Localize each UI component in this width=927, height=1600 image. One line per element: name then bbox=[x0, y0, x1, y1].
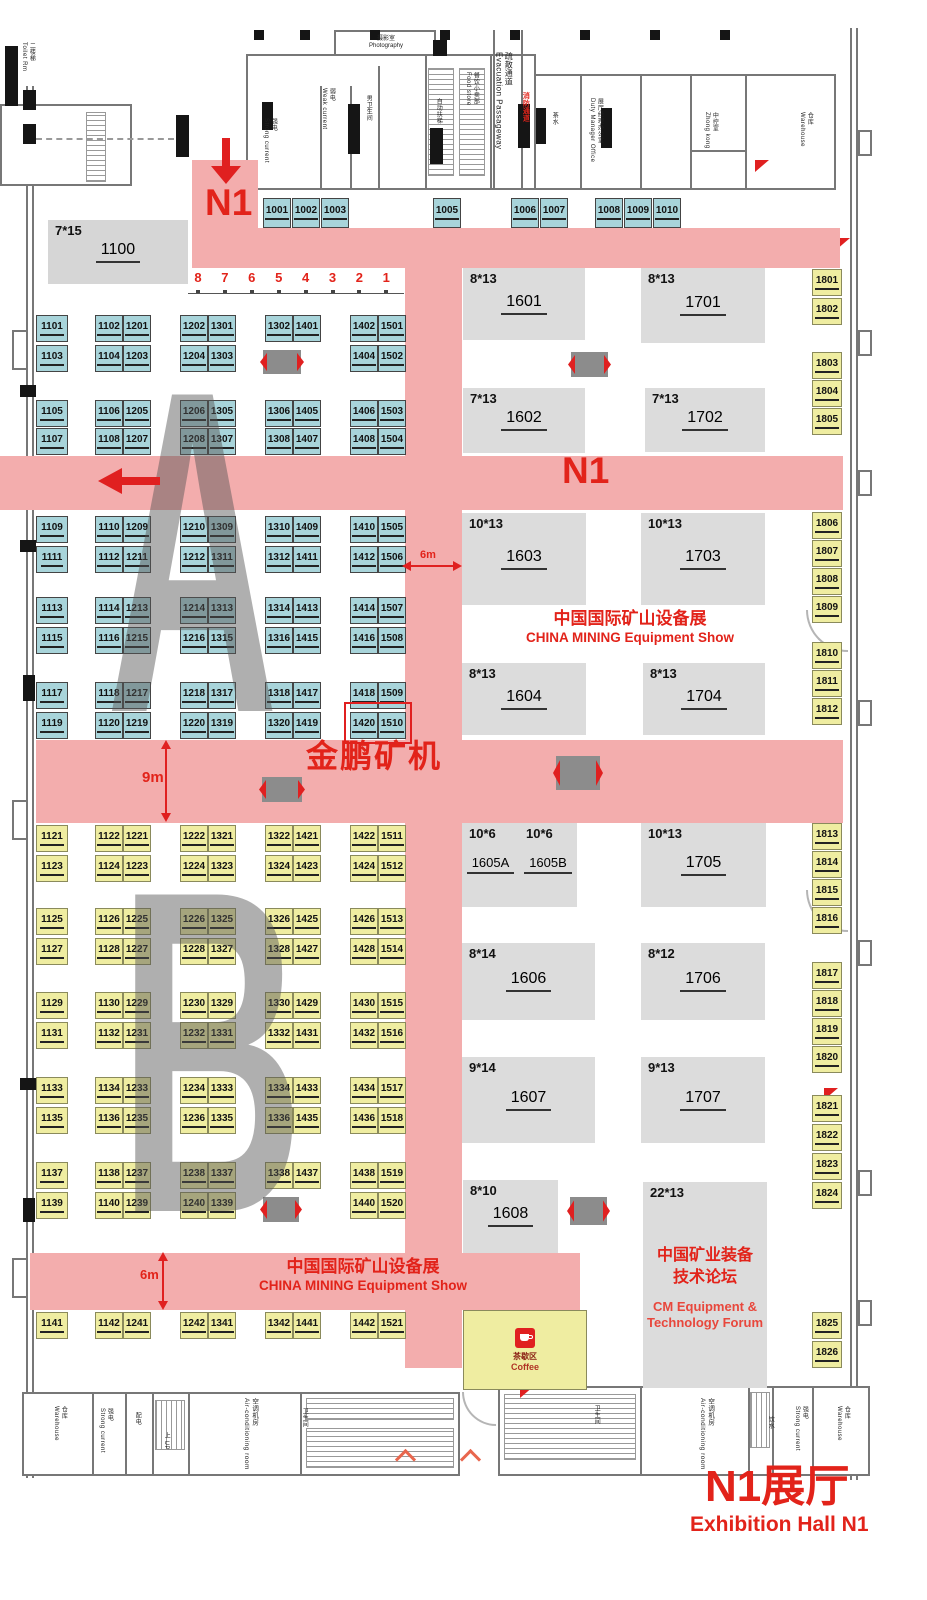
booth-1109[interactable]: 1109 bbox=[36, 516, 68, 543]
booth-number: 1426 bbox=[352, 915, 376, 929]
booth-1205[interactable]: 1205 bbox=[123, 400, 151, 427]
booth-number: 1314 bbox=[267, 604, 291, 618]
booth-number: 1520 bbox=[380, 1199, 404, 1213]
booth-1110[interactable]: 1110 bbox=[95, 516, 123, 543]
booth-number: 1511 bbox=[380, 832, 404, 846]
booth-1137[interactable]: 1137 bbox=[36, 1162, 68, 1189]
booth-1313[interactable]: 1313 bbox=[208, 597, 236, 624]
booth-1235[interactable]: 1235 bbox=[123, 1107, 151, 1134]
booth-number: 1517 bbox=[380, 1084, 404, 1098]
booth-1821[interactable]: 1821 bbox=[812, 1095, 842, 1122]
booth-1606[interactable]: 8*141606 bbox=[462, 943, 595, 1020]
booth-number: 1322 bbox=[267, 832, 291, 846]
booth-1111[interactable]: 1111 bbox=[36, 546, 68, 573]
booth-number: 1431 bbox=[295, 1029, 319, 1043]
booth-1816[interactable]: 1816 bbox=[812, 907, 842, 934]
dim-6m-line bbox=[410, 565, 454, 567]
booth-1123[interactable]: 1123 bbox=[36, 855, 68, 882]
booth-1217[interactable]: 1217 bbox=[123, 682, 151, 709]
booth-1519[interactable]: 1519 bbox=[378, 1162, 406, 1189]
booth-1513[interactable]: 1513 bbox=[378, 908, 406, 935]
booth-1818[interactable]: 1818 bbox=[812, 990, 842, 1017]
booth-1817[interactable]: 1817 bbox=[812, 962, 842, 989]
booth-1204[interactable]: 1204 bbox=[180, 345, 208, 372]
booth-1234[interactable]: 1234 bbox=[180, 1077, 208, 1104]
pillar bbox=[262, 777, 302, 802]
booth-1405[interactable]: 1405 bbox=[293, 400, 321, 427]
booth-number: 1333 bbox=[210, 1084, 234, 1098]
booth-1230[interactable]: 1230 bbox=[180, 992, 208, 1019]
booth-1141[interactable]: 1141 bbox=[36, 1312, 68, 1339]
booth-1809[interactable]: 1809 bbox=[812, 596, 842, 623]
booth-number: 1231 bbox=[125, 1029, 149, 1043]
booth-1211[interactable]: 1211 bbox=[123, 546, 151, 573]
booth-number: 1103 bbox=[40, 352, 64, 366]
booth-1407[interactable]: 1407 bbox=[293, 428, 321, 455]
booth-1501[interactable]: 1501 bbox=[378, 315, 406, 342]
booth-1119[interactable]: 1119 bbox=[36, 712, 68, 739]
booth-1305[interactable]: 1305 bbox=[208, 400, 236, 427]
booth-1423[interactable]: 1423 bbox=[293, 855, 321, 882]
booth-1102[interactable]: 1102 bbox=[95, 315, 123, 342]
booth-1238[interactable]: 1238 bbox=[180, 1162, 208, 1189]
booth-1322[interactable]: 1322 bbox=[265, 825, 293, 852]
booth-1138[interactable]: 1138 bbox=[95, 1162, 123, 1189]
booth-1231[interactable]: 1231 bbox=[123, 1022, 151, 1049]
booth-1438[interactable]: 1438 bbox=[350, 1162, 378, 1189]
booth-1106[interactable]: 1106 bbox=[95, 400, 123, 427]
booth-1605A[interactable]: 10*61605A bbox=[462, 823, 519, 907]
booth-1112[interactable]: 1112 bbox=[95, 546, 123, 573]
booth-1219[interactable]: 1219 bbox=[123, 712, 151, 739]
booth-number: 1236 bbox=[182, 1114, 206, 1128]
booth-1208[interactable]: 1208 bbox=[180, 428, 208, 455]
booth-1306[interactable]: 1306 bbox=[265, 400, 293, 427]
booth-number: 1320 bbox=[267, 719, 291, 733]
booth-number: 1007 bbox=[542, 206, 566, 220]
booth-1301[interactable]: 1301 bbox=[208, 315, 236, 342]
booth-1508[interactable]: 1508 bbox=[378, 627, 406, 654]
booth-1309[interactable]: 1309 bbox=[208, 516, 236, 543]
booth-1608[interactable]: 8*101608 bbox=[463, 1180, 558, 1253]
booth-1425[interactable]: 1425 bbox=[293, 908, 321, 935]
booth-forum[interactable]: 22*13 中国矿业装备 技术论坛 CM Equipment & Technol… bbox=[643, 1182, 767, 1388]
booth-1006[interactable]: 1006 bbox=[511, 198, 539, 228]
booth-1303[interactable]: 1303 bbox=[208, 345, 236, 372]
booth-1514[interactable]: 1514 bbox=[378, 938, 406, 965]
booth-1707[interactable]: 9*131707 bbox=[641, 1057, 765, 1143]
booth-1421[interactable]: 1421 bbox=[293, 825, 321, 852]
booth-1206[interactable]: 1206 bbox=[180, 400, 208, 427]
booth-1704[interactable]: 8*131704 bbox=[643, 663, 765, 735]
booth-1209[interactable]: 1209 bbox=[123, 516, 151, 543]
booth-1335[interactable]: 1335 bbox=[208, 1107, 236, 1134]
booth-1108[interactable]: 1108 bbox=[95, 428, 123, 455]
booth-1427[interactable]: 1427 bbox=[293, 938, 321, 965]
booth-1412[interactable]: 1412 bbox=[350, 546, 378, 573]
booth-1512[interactable]: 1512 bbox=[378, 855, 406, 882]
booth-1314[interactable]: 1314 bbox=[265, 597, 293, 624]
booth-1330[interactable]: 1330 bbox=[265, 992, 293, 1019]
booth-1805[interactable]: 1805 bbox=[812, 408, 842, 435]
booth-1402[interactable]: 1402 bbox=[350, 315, 378, 342]
booth-1237[interactable]: 1237 bbox=[123, 1162, 151, 1189]
booth-number: 1102 bbox=[97, 322, 121, 336]
booth-1312[interactable]: 1312 bbox=[265, 546, 293, 573]
booth-1318[interactable]: 1318 bbox=[265, 682, 293, 709]
booth-1317[interactable]: 1317 bbox=[208, 682, 236, 709]
booth-1216[interactable]: 1216 bbox=[180, 627, 208, 654]
booth-1607[interactable]: 9*141607 bbox=[462, 1057, 595, 1143]
booth-1329[interactable]: 1329 bbox=[208, 992, 236, 1019]
booth-number: 1319 bbox=[210, 719, 234, 733]
booth-number: 1512 bbox=[380, 862, 404, 876]
booth-1408[interactable]: 1408 bbox=[350, 428, 378, 455]
dim-arrow-icon bbox=[161, 740, 171, 749]
booth-number: 1332 bbox=[267, 1029, 291, 1043]
booth-1822[interactable]: 1822 bbox=[812, 1124, 842, 1151]
booth-1100[interactable]: 7*15 1100 bbox=[48, 220, 188, 284]
booth-1813[interactable]: 1813 bbox=[812, 823, 842, 850]
booth-1416[interactable]: 1416 bbox=[350, 627, 378, 654]
booth-1808[interactable]: 1808 bbox=[812, 568, 842, 595]
booth-1604[interactable]: 8*131604 bbox=[462, 663, 586, 735]
booth-1236[interactable]: 1236 bbox=[180, 1107, 208, 1134]
booth-1125[interactable]: 1125 bbox=[36, 908, 68, 935]
booth-1121[interactable]: 1121 bbox=[36, 825, 68, 852]
booth-1705[interactable]: 10*131705 bbox=[641, 823, 766, 907]
booth-number: 1515 bbox=[380, 999, 404, 1013]
booth-1428[interactable]: 1428 bbox=[350, 938, 378, 965]
booth-1203[interactable]: 1203 bbox=[123, 345, 151, 372]
booth-1825[interactable]: 1825 bbox=[812, 1312, 842, 1339]
booth-1824[interactable]: 1824 bbox=[812, 1182, 842, 1209]
booth-number: 1815 bbox=[815, 886, 839, 900]
coffee-area[interactable]: 茶歇区 Coffee bbox=[463, 1310, 587, 1390]
booth-1422[interactable]: 1422 bbox=[350, 825, 378, 852]
booth-size-label: 7*13 bbox=[470, 392, 497, 405]
booth-1229[interactable]: 1229 bbox=[123, 992, 151, 1019]
booth-1132[interactable]: 1132 bbox=[95, 1022, 123, 1049]
booth-1502[interactable]: 1502 bbox=[378, 345, 406, 372]
booth-1134[interactable]: 1134 bbox=[95, 1077, 123, 1104]
booth-number: 1822 bbox=[815, 1131, 839, 1145]
booth-number: 1428 bbox=[352, 945, 376, 959]
booth-1320[interactable]: 1320 bbox=[265, 712, 293, 739]
booth-1126[interactable]: 1126 bbox=[95, 908, 123, 935]
booth-number: 1321 bbox=[210, 832, 234, 846]
booth-1701[interactable]: 8*131701 bbox=[641, 268, 765, 343]
booth-1431[interactable]: 1431 bbox=[293, 1022, 321, 1049]
booth-1437[interactable]: 1437 bbox=[293, 1162, 321, 1189]
booth-1331[interactable]: 1331 bbox=[208, 1022, 236, 1049]
booth-number: 1219 bbox=[125, 719, 149, 733]
booth-1520[interactable]: 1520 bbox=[378, 1192, 406, 1219]
booth-size-label: 10*13 bbox=[648, 827, 682, 840]
booth-1129[interactable]: 1129 bbox=[36, 992, 68, 1019]
booth-1401[interactable]: 1401 bbox=[293, 315, 321, 342]
booth-number: 1331 bbox=[210, 1029, 234, 1043]
booth-1220[interactable]: 1220 bbox=[180, 712, 208, 739]
booth-1404[interactable]: 1404 bbox=[350, 345, 378, 372]
booth-1307[interactable]: 1307 bbox=[208, 428, 236, 455]
booth-1130[interactable]: 1130 bbox=[95, 992, 123, 1019]
booth-1007[interactable]: 1007 bbox=[540, 198, 568, 228]
booth-number: 1307 bbox=[210, 435, 234, 449]
booth-1334[interactable]: 1334 bbox=[265, 1077, 293, 1104]
booth-1337[interactable]: 1337 bbox=[208, 1162, 236, 1189]
booth-1212[interactable]: 1212 bbox=[180, 546, 208, 573]
booth-1424[interactable]: 1424 bbox=[350, 855, 378, 882]
booth-1602[interactable]: 7*131602 bbox=[463, 388, 585, 453]
booth-1114[interactable]: 1114 bbox=[95, 597, 123, 624]
booth-1127[interactable]: 1127 bbox=[36, 938, 68, 965]
booth-1336[interactable]: 1336 bbox=[265, 1107, 293, 1134]
booth-number: 1433 bbox=[295, 1084, 319, 1098]
booth-1201[interactable]: 1201 bbox=[123, 315, 151, 342]
floor-plan: 1101110212011202130113021401140215011103… bbox=[0, 0, 927, 1600]
booth-1603[interactable]: 10*131603 bbox=[462, 513, 586, 605]
booth-1222[interactable]: 1222 bbox=[180, 825, 208, 852]
booth-1430[interactable]: 1430 bbox=[350, 992, 378, 1019]
booth-number: 1122 bbox=[97, 832, 121, 846]
booth-1434[interactable]: 1434 bbox=[350, 1077, 378, 1104]
booth-1406[interactable]: 1406 bbox=[350, 400, 378, 427]
booth-1338[interactable]: 1338 bbox=[265, 1162, 293, 1189]
booth-1515[interactable]: 1515 bbox=[378, 992, 406, 1019]
booth-1820[interactable]: 1820 bbox=[812, 1046, 842, 1073]
booth-1218[interactable]: 1218 bbox=[180, 682, 208, 709]
ruler-number: 3 bbox=[325, 270, 341, 285]
booth-1328[interactable]: 1328 bbox=[265, 938, 293, 965]
booth-1339[interactable]: 1339 bbox=[208, 1192, 236, 1219]
booth-1009[interactable]: 1009 bbox=[624, 198, 652, 228]
room-label: 上 UP bbox=[162, 1432, 169, 1450]
booth-1504[interactable]: 1504 bbox=[378, 428, 406, 455]
booth-1101[interactable]: 1101 bbox=[36, 315, 68, 342]
booth-number: 1213 bbox=[125, 604, 149, 618]
booth-1326[interactable]: 1326 bbox=[265, 908, 293, 935]
booth-1120[interactable]: 1120 bbox=[95, 712, 123, 739]
booth-1207[interactable]: 1207 bbox=[123, 428, 151, 455]
room-label: 仓库 Warehouse bbox=[52, 1406, 66, 1441]
booth-1440[interactable]: 1440 bbox=[350, 1192, 378, 1219]
booth-1202[interactable]: 1202 bbox=[180, 315, 208, 342]
booth-1409[interactable]: 1409 bbox=[293, 516, 321, 543]
booth-1517[interactable]: 1517 bbox=[378, 1077, 406, 1104]
booth-1233[interactable]: 1233 bbox=[123, 1077, 151, 1104]
booth-1214[interactable]: 1214 bbox=[180, 597, 208, 624]
booth-1819[interactable]: 1819 bbox=[812, 1018, 842, 1045]
booth-1804[interactable]: 1804 bbox=[812, 380, 842, 407]
booth-size-label: 9*14 bbox=[469, 1061, 496, 1074]
booth-number: 1136 bbox=[97, 1114, 121, 1128]
booth-1223[interactable]: 1223 bbox=[123, 855, 151, 882]
booth-1008[interactable]: 1008 bbox=[595, 198, 623, 228]
booth-1232[interactable]: 1232 bbox=[180, 1022, 208, 1049]
booth-1315[interactable]: 1315 bbox=[208, 627, 236, 654]
ruler-number: 1 bbox=[378, 270, 394, 285]
ruler-number: 5 bbox=[271, 270, 287, 285]
booth-1107[interactable]: 1107 bbox=[36, 428, 68, 455]
booth-number: 1205 bbox=[125, 407, 149, 421]
booth-1242[interactable]: 1242 bbox=[180, 1312, 208, 1339]
booth-1002[interactable]: 1002 bbox=[292, 198, 320, 228]
booth-1103[interactable]: 1103 bbox=[36, 345, 68, 372]
booth-1323[interactable]: 1323 bbox=[208, 855, 236, 882]
booth-number: 1804 bbox=[815, 387, 839, 401]
booth-1411[interactable]: 1411 bbox=[293, 546, 321, 573]
booth-1221[interactable]: 1221 bbox=[123, 825, 151, 852]
booth-1116[interactable]: 1116 bbox=[95, 627, 123, 654]
booth-1210[interactable]: 1210 bbox=[180, 516, 208, 543]
booth-1815[interactable]: 1815 bbox=[812, 879, 842, 906]
booth-1341[interactable]: 1341 bbox=[208, 1312, 236, 1339]
booth-1321[interactable]: 1321 bbox=[208, 825, 236, 852]
booth-1311[interactable]: 1311 bbox=[208, 546, 236, 573]
booth-number: 1421 bbox=[295, 832, 319, 846]
booth-1310[interactable]: 1310 bbox=[265, 516, 293, 543]
booth-1706[interactable]: 8*121706 bbox=[641, 943, 765, 1020]
booth-1240[interactable]: 1240 bbox=[180, 1192, 208, 1219]
booth-1702[interactable]: 7*131702 bbox=[645, 388, 765, 452]
booth-1601[interactable]: 8*131601 bbox=[463, 268, 585, 340]
booth-1001[interactable]: 1001 bbox=[263, 198, 291, 228]
booth-number: 1212 bbox=[182, 553, 206, 567]
booth-number: 1702 bbox=[682, 410, 728, 431]
booth-1113[interactable]: 1113 bbox=[36, 597, 68, 624]
booth-1823[interactable]: 1823 bbox=[812, 1153, 842, 1180]
booth-1521[interactable]: 1521 bbox=[378, 1312, 406, 1339]
entrance-label: N1 bbox=[205, 184, 252, 221]
booth-1410[interactable]: 1410 bbox=[350, 516, 378, 543]
booth-number: 1824 bbox=[815, 1189, 839, 1203]
booth-number: 1317 bbox=[210, 689, 234, 703]
booth-1432[interactable]: 1432 bbox=[350, 1022, 378, 1049]
booth-1516[interactable]: 1516 bbox=[378, 1022, 406, 1049]
ruler-number: 8 bbox=[190, 270, 206, 285]
booth-number: 1303 bbox=[210, 352, 234, 366]
booth-1225[interactable]: 1225 bbox=[123, 908, 151, 935]
booth-1811[interactable]: 1811 bbox=[812, 670, 842, 697]
booth-1333[interactable]: 1333 bbox=[208, 1077, 236, 1104]
booth-1139[interactable]: 1139 bbox=[36, 1192, 68, 1219]
booth-1302[interactable]: 1302 bbox=[265, 315, 293, 342]
booth-1131[interactable]: 1131 bbox=[36, 1022, 68, 1049]
booth-1442[interactable]: 1442 bbox=[350, 1312, 378, 1339]
booth-1342[interactable]: 1342 bbox=[265, 1312, 293, 1339]
booth-1228[interactable]: 1228 bbox=[180, 938, 208, 965]
room-label: 餐饮小卖部 Food store bbox=[464, 72, 478, 106]
booth-1419[interactable]: 1419 bbox=[293, 712, 321, 739]
booth-1104[interactable]: 1104 bbox=[95, 345, 123, 372]
booth-1010[interactable]: 1010 bbox=[653, 198, 681, 228]
booth-1507[interactable]: 1507 bbox=[378, 597, 406, 624]
booth-1117[interactable]: 1117 bbox=[36, 682, 68, 709]
booth-1812[interactable]: 1812 bbox=[812, 698, 842, 725]
booth-number: 1002 bbox=[294, 206, 318, 220]
booth-1105[interactable]: 1105 bbox=[36, 400, 68, 427]
booth-number: 1129 bbox=[40, 999, 64, 1013]
booth-number: 1127 bbox=[40, 945, 64, 959]
booth-size-label: 8*13 bbox=[470, 272, 497, 285]
booth-number: 1141 bbox=[40, 1319, 64, 1333]
booth-size-label: 9*13 bbox=[648, 1061, 675, 1074]
booth-1239[interactable]: 1239 bbox=[123, 1192, 151, 1219]
booth-1135[interactable]: 1135 bbox=[36, 1107, 68, 1134]
booth-1806[interactable]: 1806 bbox=[812, 512, 842, 539]
booth-number: 1703 bbox=[680, 549, 726, 570]
booth-1128[interactable]: 1128 bbox=[95, 938, 123, 965]
booth-1316[interactable]: 1316 bbox=[265, 627, 293, 654]
booth-1308[interactable]: 1308 bbox=[265, 428, 293, 455]
booth-1503[interactable]: 1503 bbox=[378, 400, 406, 427]
booth-number: 1306 bbox=[267, 407, 291, 421]
booth-1826[interactable]: 1826 bbox=[812, 1341, 842, 1368]
booth-1807[interactable]: 1807 bbox=[812, 540, 842, 567]
booth-1136[interactable]: 1136 bbox=[95, 1107, 123, 1134]
booth-1140[interactable]: 1140 bbox=[95, 1192, 123, 1219]
booth-1215[interactable]: 1215 bbox=[123, 627, 151, 654]
booth-1703[interactable]: 10*131703 bbox=[641, 513, 765, 605]
booth-1133[interactable]: 1133 bbox=[36, 1077, 68, 1104]
booth-1324[interactable]: 1324 bbox=[265, 855, 293, 882]
booth-1436[interactable]: 1436 bbox=[350, 1107, 378, 1134]
booth-1122[interactable]: 1122 bbox=[95, 825, 123, 852]
booth-1319[interactable]: 1319 bbox=[208, 712, 236, 739]
corridor-zone bbox=[192, 228, 840, 268]
booth-number: 1606 bbox=[506, 971, 552, 992]
booth-1003[interactable]: 1003 bbox=[321, 198, 349, 228]
ruler-number: 6 bbox=[244, 270, 260, 285]
booth-1325[interactable]: 1325 bbox=[208, 908, 236, 935]
booth-1413[interactable]: 1413 bbox=[293, 597, 321, 624]
booth-1810[interactable]: 1810 bbox=[812, 642, 842, 669]
booth-number: 1216 bbox=[182, 634, 206, 648]
booth-1118[interactable]: 1118 bbox=[95, 682, 123, 709]
booth-1227[interactable]: 1227 bbox=[123, 938, 151, 965]
booth-1511[interactable]: 1511 bbox=[378, 825, 406, 852]
booth-1415[interactable]: 1415 bbox=[293, 627, 321, 654]
booth-1332[interactable]: 1332 bbox=[265, 1022, 293, 1049]
booth-1226[interactable]: 1226 bbox=[180, 908, 208, 935]
booth-1505[interactable]: 1505 bbox=[378, 516, 406, 543]
booth-1803[interactable]: 1803 bbox=[812, 352, 842, 379]
booth-1435[interactable]: 1435 bbox=[293, 1107, 321, 1134]
booth-1213[interactable]: 1213 bbox=[123, 597, 151, 624]
booth-1433[interactable]: 1433 bbox=[293, 1077, 321, 1104]
booth-1814[interactable]: 1814 bbox=[812, 851, 842, 878]
booth-1241[interactable]: 1241 bbox=[123, 1312, 151, 1339]
booth-1802[interactable]: 1802 bbox=[812, 298, 842, 325]
booth-1441[interactable]: 1441 bbox=[293, 1312, 321, 1339]
booth-1115[interactable]: 1115 bbox=[36, 627, 68, 654]
booth-1429[interactable]: 1429 bbox=[293, 992, 321, 1019]
booth-number: 1211 bbox=[125, 553, 149, 567]
booth-1518[interactable]: 1518 bbox=[378, 1107, 406, 1134]
booth-1005[interactable]: 1005 bbox=[433, 198, 461, 228]
booth-1142[interactable]: 1142 bbox=[95, 1312, 123, 1339]
booth-1417[interactable]: 1417 bbox=[293, 682, 321, 709]
booth-1224[interactable]: 1224 bbox=[180, 855, 208, 882]
booth-1801[interactable]: 1801 bbox=[812, 269, 842, 296]
booth-1414[interactable]: 1414 bbox=[350, 597, 378, 624]
booth-1605B[interactable]: 10*61605B bbox=[519, 823, 577, 907]
booth-1327[interactable]: 1327 bbox=[208, 938, 236, 965]
booth-number: 1338 bbox=[267, 1169, 291, 1183]
booth-1426[interactable]: 1426 bbox=[350, 908, 378, 935]
booth-1124[interactable]: 1124 bbox=[95, 855, 123, 882]
